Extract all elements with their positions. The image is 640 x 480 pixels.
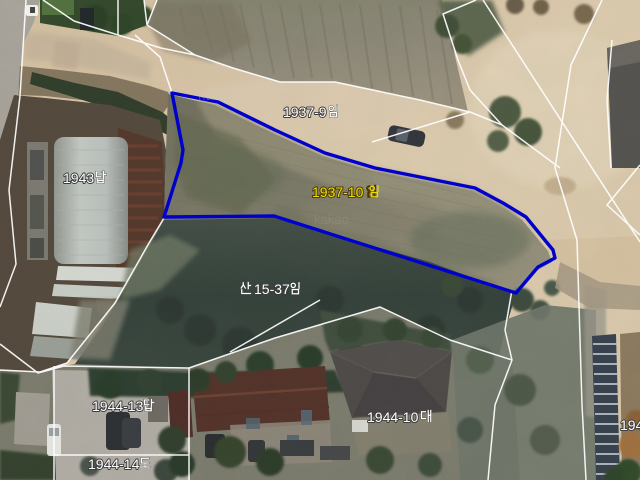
svg-text:1944-14: 1944-14 [88, 456, 140, 472]
svg-text:1937-10: 1937-10 [312, 184, 364, 200]
svg-text:194: 194 [620, 417, 640, 433]
svg-text:kakao: kakao [314, 212, 349, 227]
svg-text:1944-13: 1944-13 [92, 398, 144, 414]
svg-text:1943: 1943 [63, 170, 94, 186]
svg-text:1937-9: 1937-9 [283, 104, 327, 120]
svg-text:1944-10: 1944-10 [367, 409, 419, 425]
svg-text:kakao: kakao [198, 87, 238, 104]
svg-text:15-37: 15-37 [254, 281, 290, 297]
